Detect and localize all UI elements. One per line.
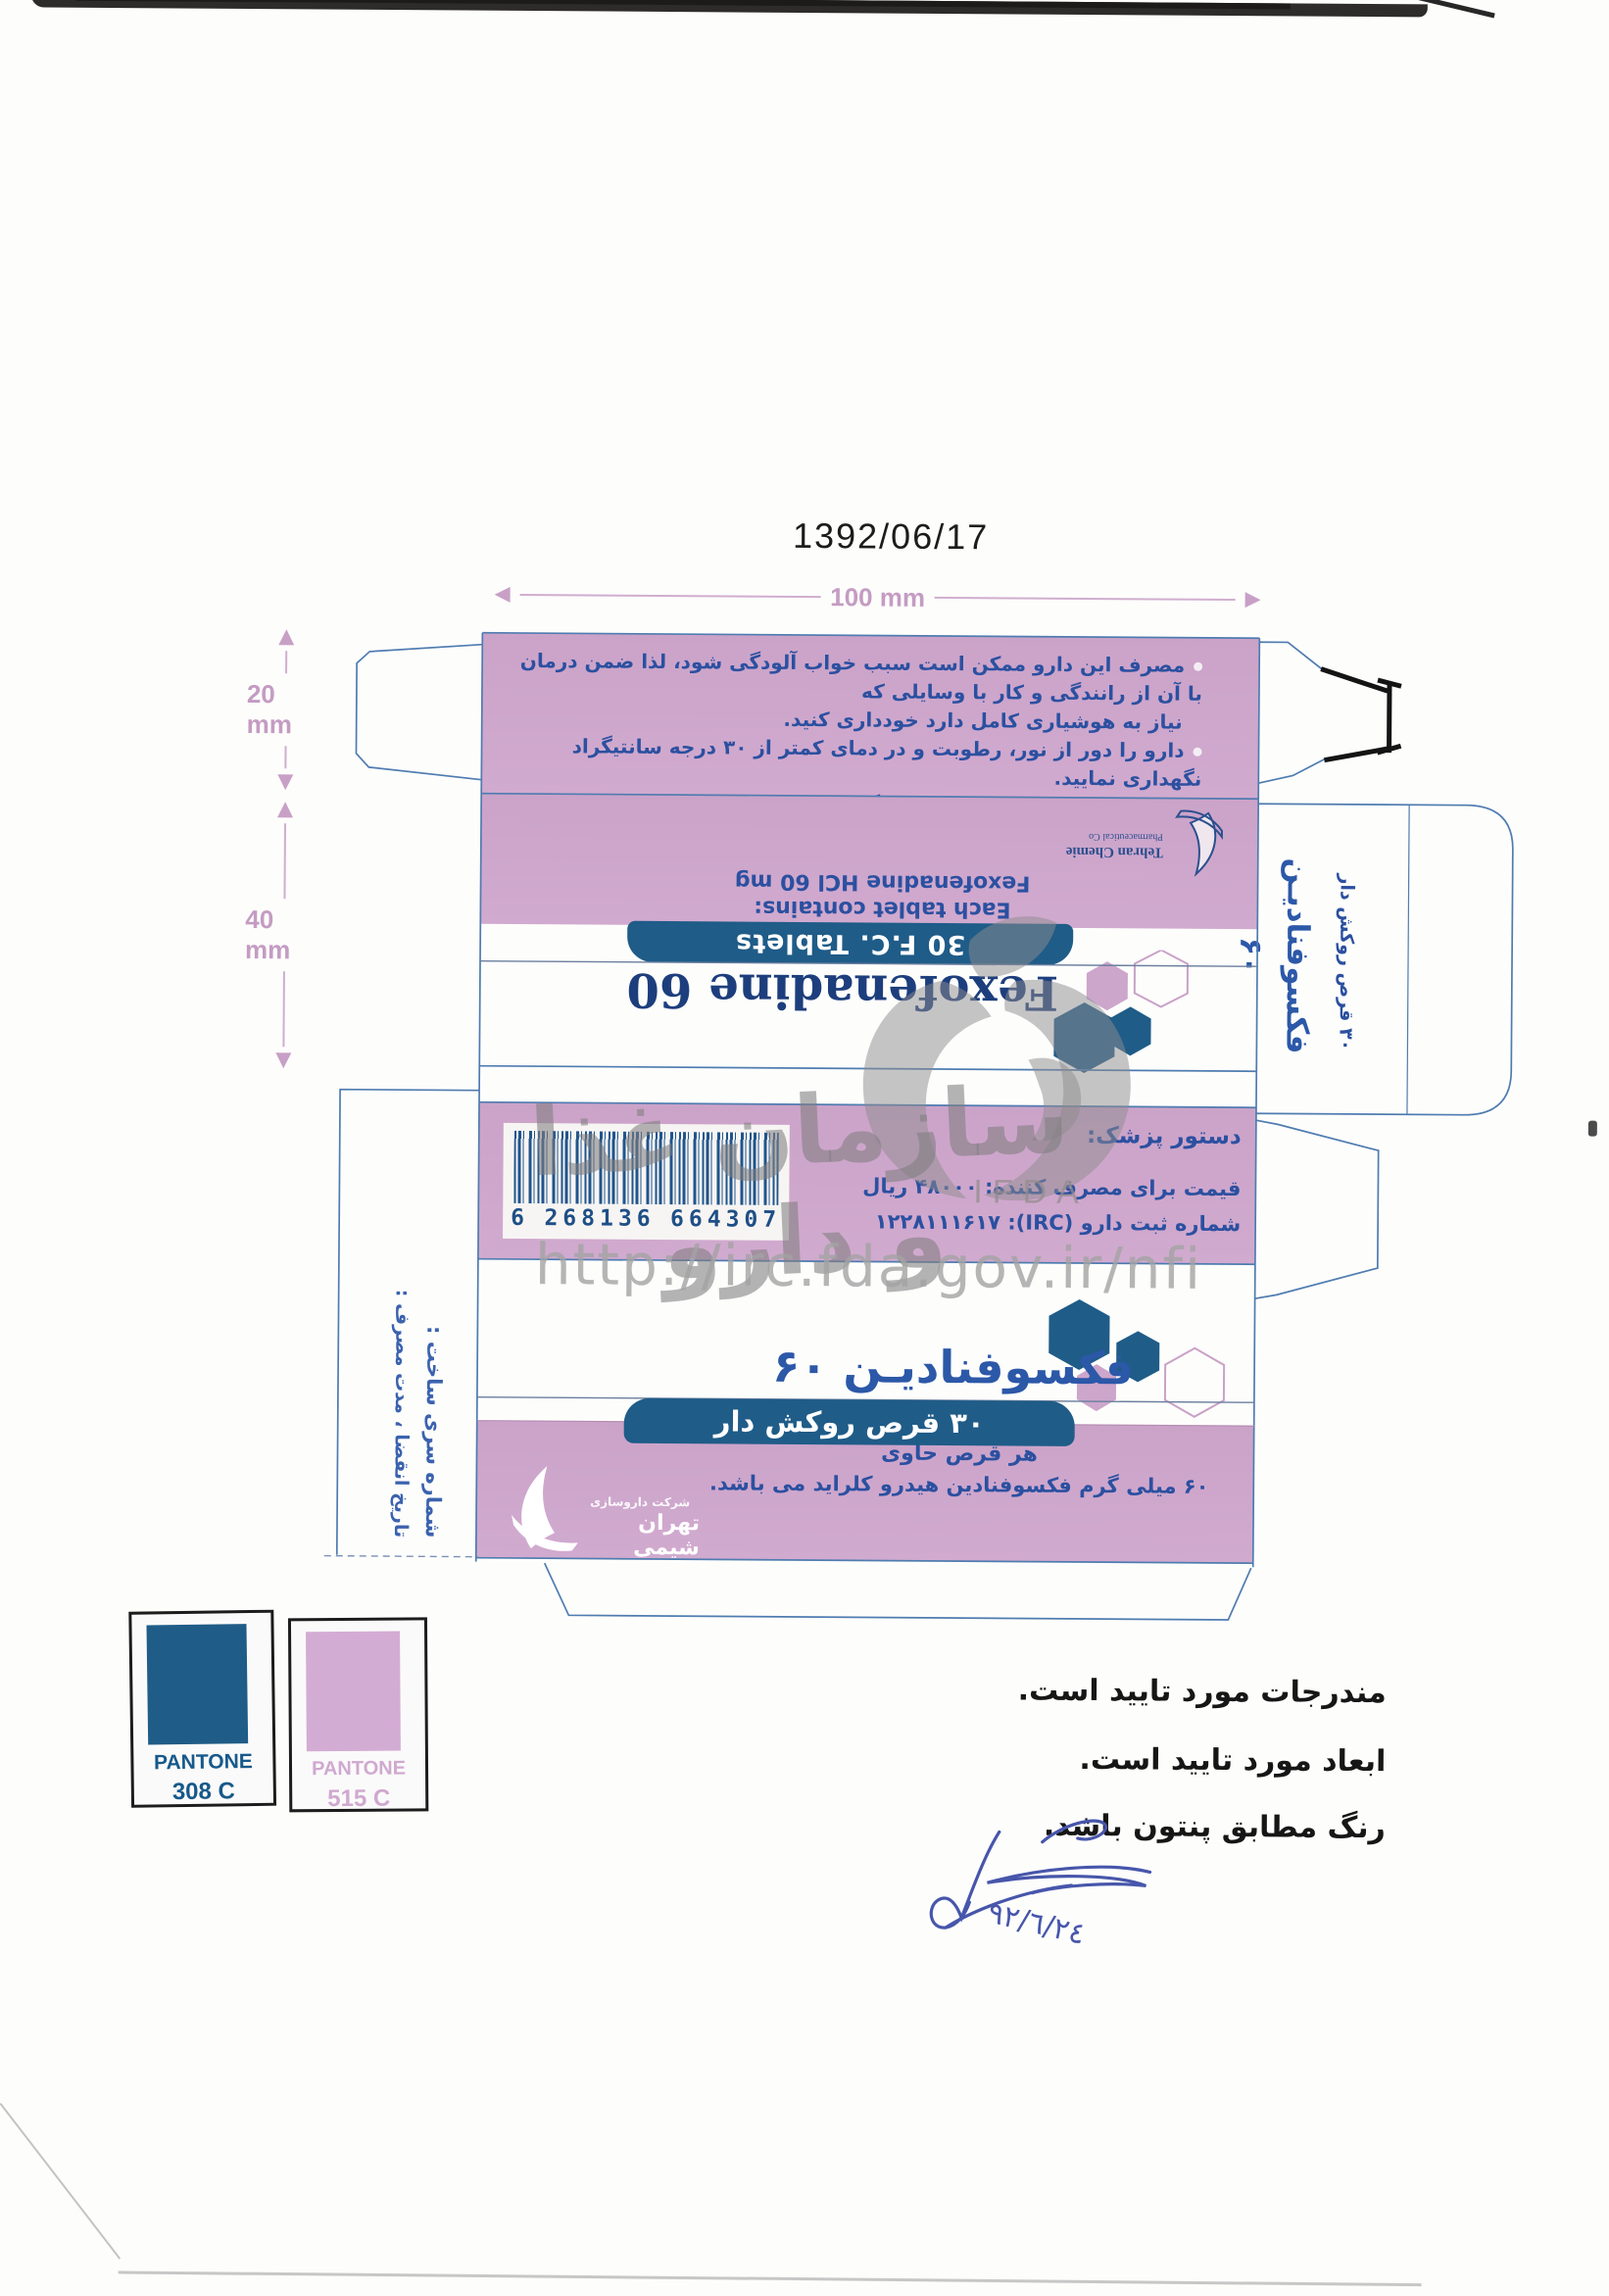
front-tablets-bar: ۳۰ قرص روکش دار	[624, 1398, 1075, 1446]
width-dimension-arrow: 100 mm	[495, 584, 1261, 611]
arrowhead-left-icon	[495, 587, 511, 603]
company-sub-en: Pharmaceutical Co	[1066, 829, 1163, 845]
scanned-packaging-proof: 1392/06/17 100 mm 20 mm 40 mm مصرف این د…	[0, 0, 1609, 2296]
warning-line: مصرف این دارو ممکن است سبب خواب آلودگی ش…	[512, 647, 1202, 708]
arrowhead-right-icon	[1245, 592, 1261, 608]
price-line: قیمت برای مصرف کننده: ۴۸۰۰۰ ریال	[821, 1174, 1241, 1200]
company-name-fa-large: تهران شیمی	[572, 1510, 700, 1560]
pantone-chip-515c: PANTONE 515 C	[288, 1617, 428, 1812]
company-name-fa-small: شرکت داروسازی	[582, 1494, 690, 1509]
pantone-code: 515 C	[292, 1784, 425, 1813]
endflap-subtitle: ۳۰ قرص روکش دار	[1332, 864, 1360, 1060]
swan-feather-icon	[1171, 809, 1231, 880]
arrowhead-down-icon	[277, 774, 293, 790]
approval-line-dimensions: ابعاد مورد تایید است.	[837, 1740, 1386, 1779]
panel-dimension-arrow: 40 mm	[244, 802, 324, 1069]
barcode-digits: 6 268136 664307	[511, 1205, 781, 1233]
pantone-label: PANTONE	[292, 1757, 425, 1781]
width-dimension-label: 100 mm	[830, 582, 925, 613]
scanner-edge-artifact	[119, 2271, 1422, 2286]
scanner-edge-artifact	[0, 2103, 121, 2260]
pantone-code: 308 C	[134, 1778, 273, 1807]
back-tablets-bar: 30 F.C. Tablets	[627, 921, 1073, 965]
rx-label: دستور پزشک:	[881, 1122, 1242, 1150]
barcode-icon	[513, 1131, 779, 1205]
color-swatch	[306, 1632, 401, 1752]
front-brand-title: فکسوفنادیـن ۶۰	[624, 1336, 1134, 1398]
approval-line-contents: مندرجات مورد تایید است.	[838, 1672, 1387, 1710]
irc-line: شماره ثبت دارو (IRC): ۱۲۲۸۱۱۱۶۱۷	[821, 1209, 1241, 1236]
company-name-en: Tehran Chemie	[1066, 844, 1163, 859]
back-brand-title: Fexofenadine 60	[598, 961, 1088, 1021]
hexagon-cluster-back	[1041, 950, 1243, 1083]
arrowhead-up-icon	[278, 629, 294, 645]
flap-dimension-arrow: 20 mm	[246, 629, 325, 791]
arrowhead-up-icon	[277, 802, 293, 817]
endflap-brand: فکسوفنادیـن ۶۰	[1273, 838, 1322, 1073]
warning-line: دارو را دور از نور، رطوبت و در دمای کمتر…	[511, 732, 1201, 794]
expiry-label: تاریخ انقضا ، مدت مصرف :	[384, 1253, 414, 1538]
front-contains-text: هر قرص حاوی ۶۰ میلی گرم فکسوفنادین هیدرو…	[682, 1440, 1236, 1498]
proof-date: 1392/06/17	[793, 515, 989, 558]
panel-dimension-label: 40 mm	[245, 904, 323, 966]
signature	[904, 1792, 1199, 1980]
pantone-label: PANTONE	[133, 1750, 272, 1776]
warnings-panel: مصرف این دارو ممکن است سبب خواب آلودگی ش…	[481, 633, 1259, 800]
scan-speck	[1588, 1121, 1597, 1137]
arrowhead-down-icon	[275, 1052, 291, 1068]
color-swatch	[146, 1624, 248, 1744]
scan-content: 1392/06/17 100 mm 20 mm 40 mm مصرف این د…	[0, 0, 1609, 2296]
barcode-box: 6 268136 664307	[503, 1123, 790, 1241]
batch-number-label: شماره سری ساخت :	[415, 1253, 447, 1538]
pantone-chip-308c: PANTONE 308 C	[128, 1610, 276, 1808]
back-contains-text: Each tablet contains: Fexofenadine HCl 6…	[686, 867, 1078, 923]
flap-dimension-label: 20 mm	[247, 679, 325, 741]
